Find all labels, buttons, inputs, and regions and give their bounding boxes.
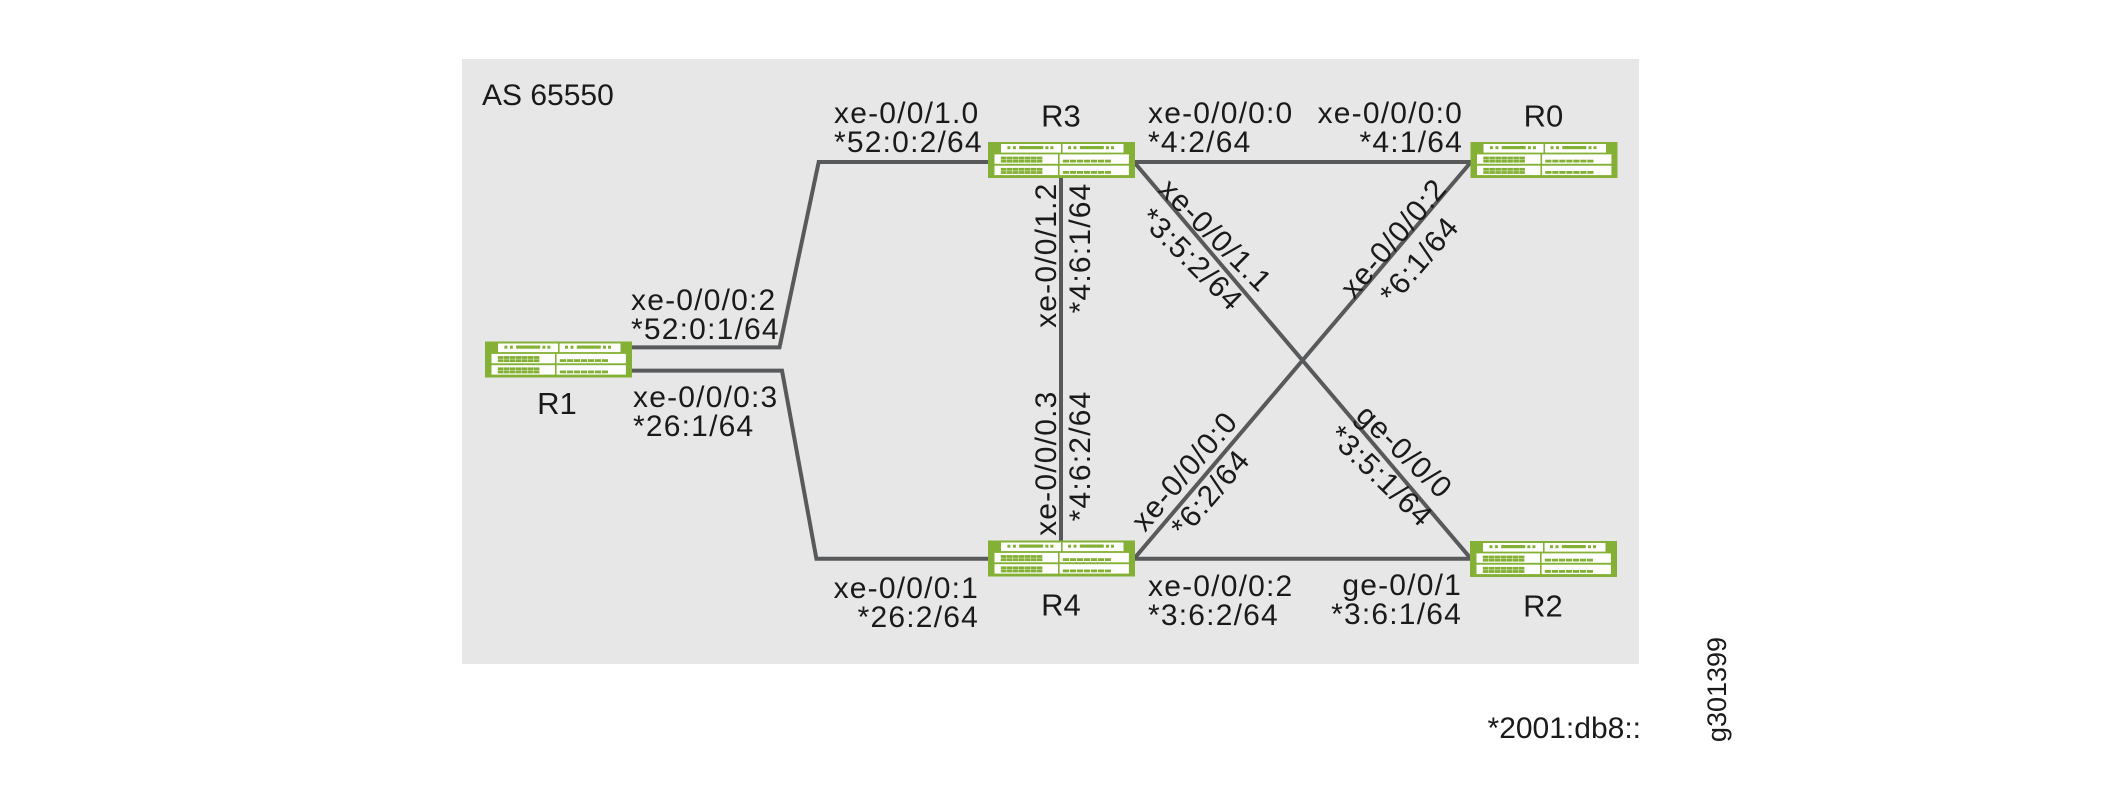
svg-text:xe-0/0/0:2*52:0:1/64: xe-0/0/0:2*52:0:1/64 xyxy=(631,284,780,346)
svg-text:AS 65550: AS 65550 xyxy=(482,79,614,112)
svg-text:xe-0/0/1.2*4:6:1/64: xe-0/0/1.2*4:6:1/64 xyxy=(1030,183,1097,328)
svg-text:ge-0/0/1*3:6:1/64: ge-0/0/1*3:6:1/64 xyxy=(1331,569,1462,631)
svg-text:R4: R4 xyxy=(1041,588,1081,623)
svg-text:R2: R2 xyxy=(1523,589,1563,624)
svg-text:xe-0/0/0:2*3:6:2/64: xe-0/0/0:2*3:6:2/64 xyxy=(1148,570,1293,632)
svg-text:xe-0/0/0.3*4:6:2/64: xe-0/0/0.3*4:6:2/64 xyxy=(1030,391,1097,536)
svg-text:R1: R1 xyxy=(537,386,577,421)
svg-text:R0: R0 xyxy=(1524,99,1564,134)
svg-text:*2001:db8::: *2001:db8:: xyxy=(1488,712,1641,745)
svg-text:xe-0/0/1.0*52:0:2/64: xe-0/0/1.0*52:0:2/64 xyxy=(834,97,983,159)
svg-text:g301399: g301399 xyxy=(1702,637,1732,742)
svg-text:R3: R3 xyxy=(1041,99,1081,134)
